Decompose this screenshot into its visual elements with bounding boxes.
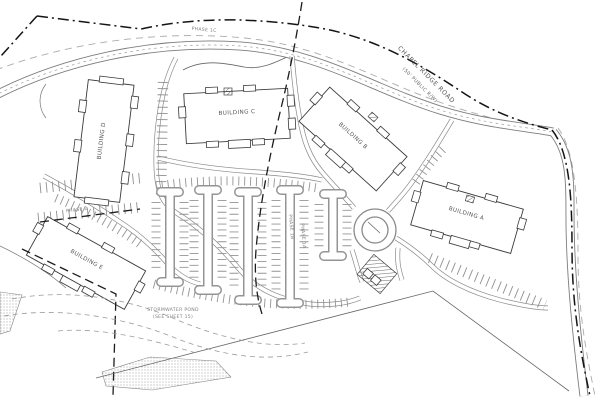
parking-islands [161, 190, 342, 303]
pond-label-line2: (SEE SHEET 15) [153, 314, 193, 320]
site-plan-drawing: BUILDING A BUILDING B BUILDING C BUILDIN… [0, 0, 600, 400]
trash-enclosure-icon [224, 88, 232, 95]
trash-enclosure-icon [368, 112, 378, 122]
pond-label-line1: STORMWATER POND [147, 307, 199, 313]
kiosk-structure [357, 254, 397, 293]
landscape-arc [40, 84, 46, 118]
phase-1c-label: PHASE 1C [191, 26, 217, 34]
riprap-area [0, 292, 22, 334]
building-a-footprint [403, 174, 530, 262]
site-plan-sheet: BUILDING A BUILDING B BUILDING C BUILDIN… [0, 0, 600, 400]
east-road-surface [553, 132, 584, 396]
phase-2-label: PHASE 2 [66, 206, 88, 215]
riprap-area [102, 357, 231, 390]
building-e-footprint [18, 209, 154, 318]
grading-line [183, 57, 287, 70]
traffic-circle [354, 209, 396, 251]
phase-1a-label: PHASE 1A [299, 223, 307, 249]
stormwater-pond [4, 295, 308, 357]
